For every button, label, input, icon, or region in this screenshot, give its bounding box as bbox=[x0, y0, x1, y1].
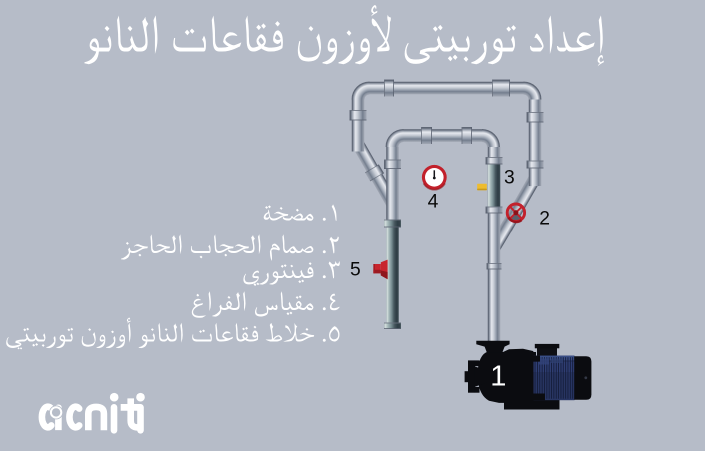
svg-text:4: 4 bbox=[428, 191, 439, 212]
svg-text:2: 2 bbox=[539, 209, 550, 230]
svg-text:5: 5 bbox=[350, 260, 361, 281]
svg-text:1: 1 bbox=[490, 360, 506, 392]
svg-text:3: 3 bbox=[504, 167, 515, 188]
